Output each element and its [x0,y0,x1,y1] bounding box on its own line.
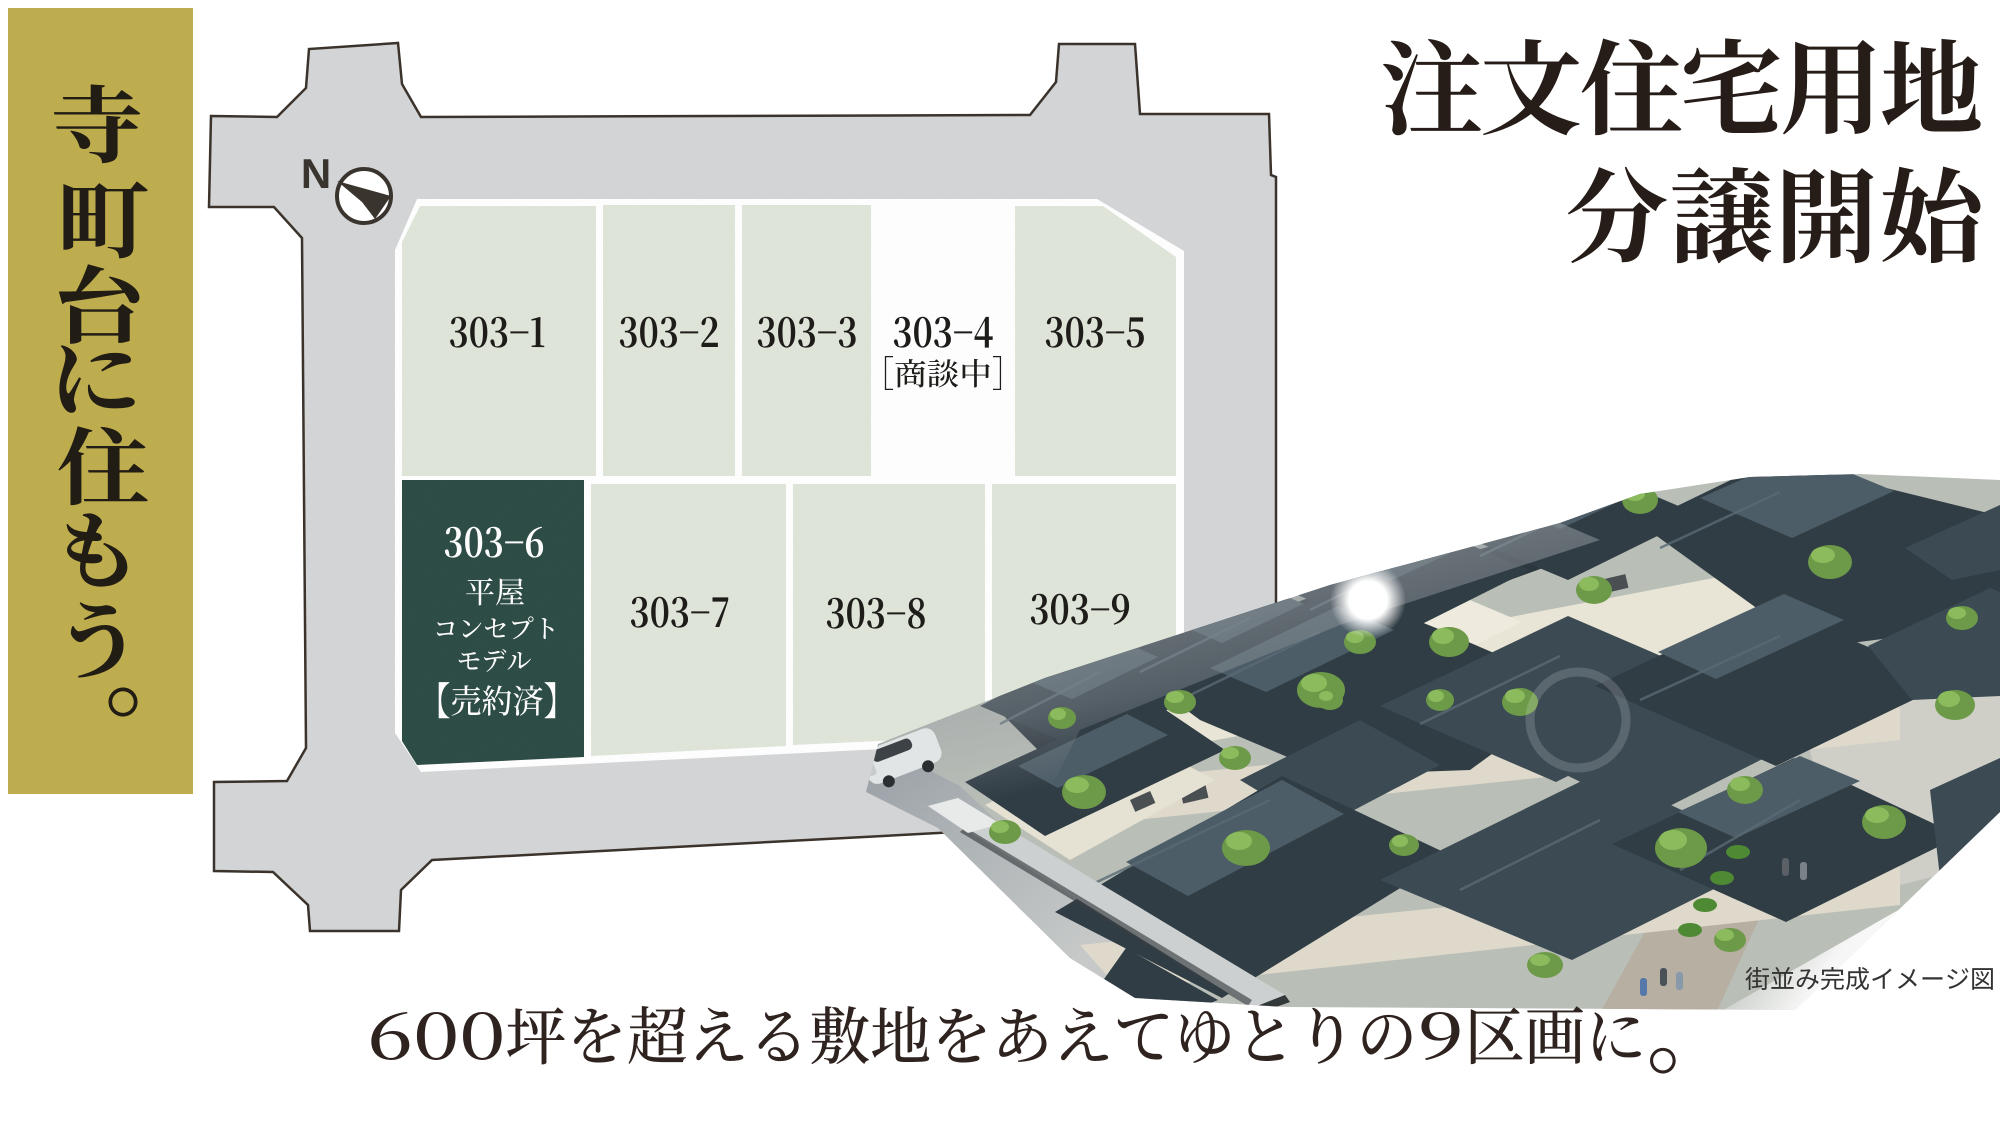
svg-text:N: N [301,150,331,197]
